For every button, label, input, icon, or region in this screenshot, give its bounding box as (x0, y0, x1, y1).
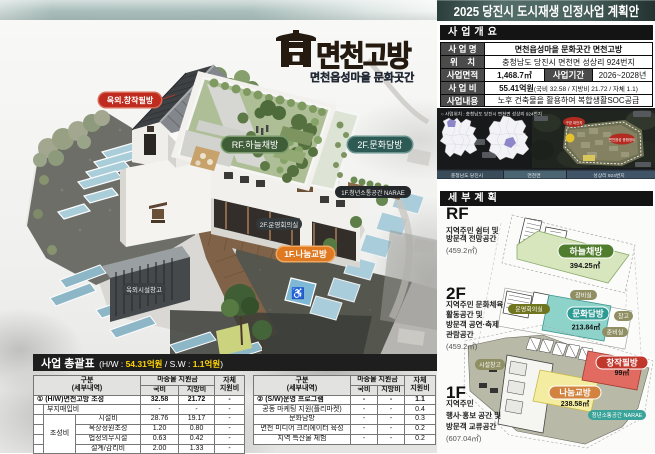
svg-text:394.25㎡: 394.25㎡ (570, 260, 601, 270)
svg-text:문화담방: 문화담방 (572, 309, 603, 319)
svg-text:구영 대안지: 구영 대안지 (565, 120, 582, 125)
svg-text:준비실: 준비실 (607, 329, 624, 337)
svg-text:99㎡: 99㎡ (615, 368, 630, 377)
svg-text:시설창고: 시설창고 (479, 361, 502, 369)
svg-text:♿: ♿ (291, 287, 305, 300)
svg-text:나눔교방: 나눔교방 (559, 388, 590, 398)
svg-text:운영회의실: 운영회의실 (515, 306, 543, 314)
svg-text:성상리 924번지: 성상리 924번지 (593, 172, 624, 179)
svg-text:213.84㎡: 213.84㎡ (572, 323, 600, 332)
svg-text:창고: 창고 (618, 313, 630, 321)
svg-text:청년소통공간 NARAE: 청년소통공간 NARAE (592, 411, 643, 419)
svg-text:하늘채방: 하늘채방 (569, 246, 603, 257)
svg-text:창작필방: 창작필방 (606, 358, 637, 368)
svg-text:○ 사업위치 : 충청남도 당진시 면천면 성상리 924번: ○ 사업위치 : 충청남도 당진시 면천면 성상리 924번지 (441, 111, 542, 118)
svg-text:면천읍성 종합정비: 면천읍성 종합정비 (609, 137, 636, 142)
svg-text:장비실: 장비실 (575, 292, 592, 300)
svg-text:면천면: 면천면 (527, 172, 540, 179)
svg-text:238.58㎡: 238.58㎡ (561, 399, 589, 408)
svg-text:충청남도 당진시: 충청남도 당진시 (451, 172, 483, 179)
